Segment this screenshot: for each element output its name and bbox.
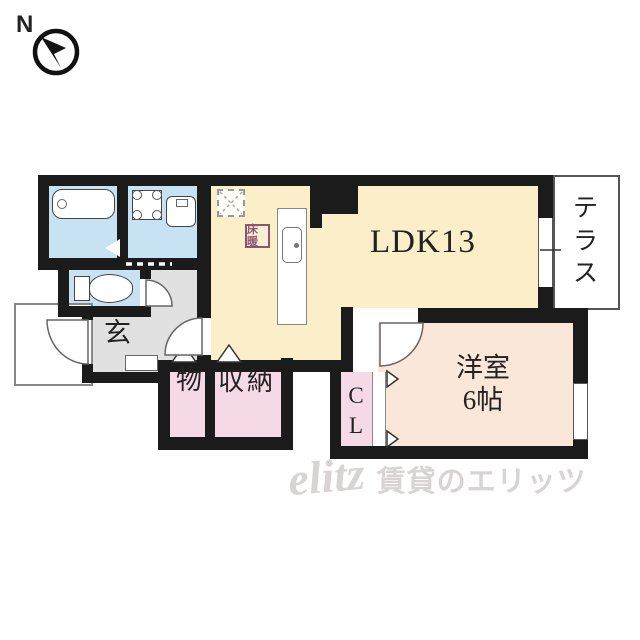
- cl-door-triangle: [387, 431, 398, 447]
- cl-door-triangle: [387, 371, 398, 387]
- hall-door-arc: [165, 318, 202, 355]
- floor-heating-stamp: 床暖: [245, 224, 270, 248]
- floor-plan: elitz 賃貸のエリッツ: [0, 0, 640, 640]
- ldk-label: LDK13: [370, 224, 476, 260]
- storage-mono-label: 物: [176, 367, 202, 396]
- storage-shuno-label: 収納: [218, 368, 276, 397]
- western-room-label: 洋室 6帖: [408, 352, 558, 417]
- terrace-label: テラス: [571, 193, 600, 291]
- western-room-size: 6帖: [408, 384, 558, 416]
- closet-cl-label: CL: [345, 381, 367, 441]
- folding-door-triangle: [217, 345, 241, 362]
- western-room-name: 洋室: [408, 352, 558, 384]
- genkan-label: 玄: [104, 319, 131, 349]
- plan-annotations: [0, 0, 640, 640]
- toilet-door-arc: [146, 280, 172, 306]
- compass-north-label: N: [16, 12, 33, 38]
- bath-door-triangle: [105, 239, 120, 257]
- entrance-door-arc: [47, 320, 88, 364]
